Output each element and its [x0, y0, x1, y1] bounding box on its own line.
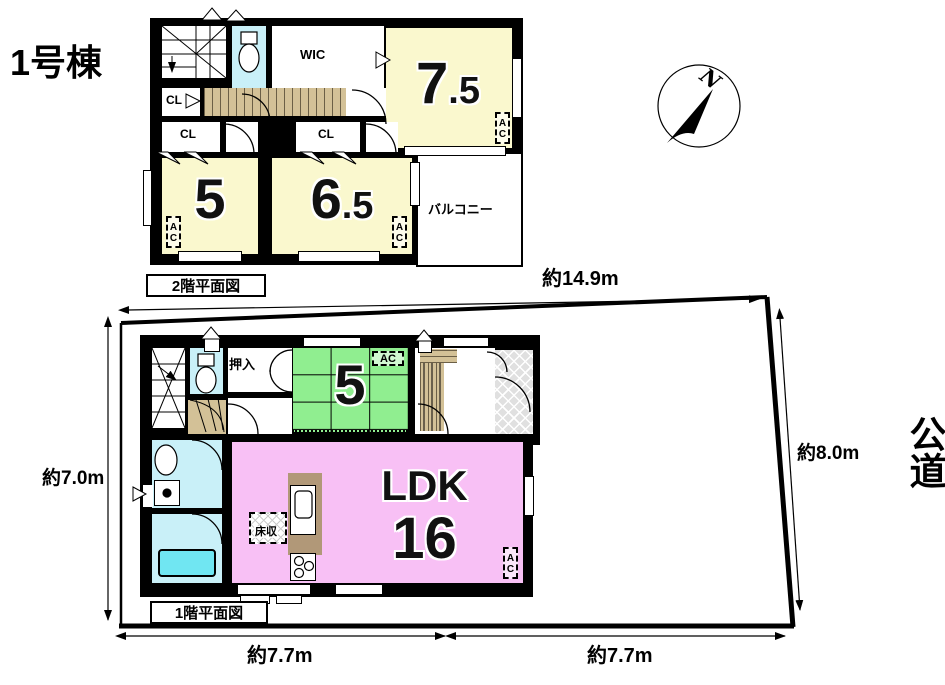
- dimension-bottom-right: 約7.7m: [585, 639, 655, 668]
- dimension-right: 約8.0m: [795, 438, 861, 465]
- room-7-5-size: 7.5: [392, 50, 504, 117]
- window: [143, 170, 152, 226]
- room-6-5-size: 6.5: [272, 166, 412, 231]
- floor2-wic-room: [272, 26, 384, 90]
- wall-jog-trim: [533, 445, 543, 597]
- dim-arrow-top: [128, 299, 759, 310]
- ac-marker-ldk: AC: [503, 547, 518, 579]
- window: [443, 337, 489, 347]
- side-door-opening: [143, 485, 153, 507]
- floor1-toilet-room: [190, 348, 223, 394]
- vent-stub: [204, 338, 220, 352]
- stove: [290, 553, 316, 581]
- window: [335, 584, 383, 595]
- floor1-stairs-run: [420, 363, 444, 431]
- floor-storage-label: 床収: [254, 526, 278, 538]
- floor1-staircase: [152, 348, 185, 428]
- closet1-label: CL: [166, 94, 182, 107]
- dimension-bottom-left: 約7.7m: [245, 639, 315, 668]
- floor2-toilet-room: [232, 26, 266, 90]
- kitchen-sink-counter: [290, 485, 316, 535]
- floor2-room5-door-gap: [226, 122, 258, 152]
- room-7-5-size-int: 7: [416, 51, 448, 116]
- genkan-entrance: [495, 350, 533, 434]
- balcony-door-window: [404, 146, 506, 156]
- window: [524, 476, 534, 516]
- window: [237, 584, 311, 595]
- room-6-5-size-int: 6: [311, 167, 342, 230]
- floor2-staircase: [162, 26, 226, 78]
- floor1-caption: 1階平面図: [150, 601, 268, 624]
- porch-step: [276, 595, 302, 604]
- balcony-label: バルコニー: [428, 203, 493, 217]
- wic-label: WIC: [300, 48, 325, 62]
- ldk-size: 16: [362, 505, 487, 572]
- tatami-room-size: 5: [292, 352, 408, 417]
- oshiire-label: 押入: [229, 358, 255, 372]
- compass-north-label: N: [695, 63, 726, 95]
- ldk-label: LDK: [352, 462, 497, 510]
- room-7-5-size-dec: .5: [448, 70, 480, 112]
- floor-plan-canvas: 1号棟 WIC 7.5 AC CL CL CL 5 AC 6.5 AC バルコニ…: [0, 0, 945, 685]
- window: [298, 251, 380, 262]
- dimension-top: 約14.9m: [540, 262, 621, 291]
- floor2-hall-door-gap: [346, 88, 386, 116]
- road-label: 公道: [897, 415, 945, 565]
- dimension-left: 約7.0m: [40, 463, 106, 490]
- window: [303, 337, 361, 347]
- lot-boundary-right: [767, 297, 793, 627]
- bathtub: [158, 549, 216, 577]
- window: [178, 251, 242, 262]
- floor1-stair-landing: [188, 400, 226, 434]
- compass-needle-icon: [667, 89, 713, 143]
- floor2-hall-stairs: [204, 88, 346, 116]
- closet3-label: CL: [318, 128, 334, 141]
- floor2-caption: 2階平面図: [146, 274, 266, 297]
- floor2-room65-door-gap: [366, 122, 398, 152]
- floor-storage: 床収: [249, 512, 287, 544]
- floor1-hall: [228, 398, 292, 434]
- floor1-closet-doors: [263, 348, 292, 392]
- vent-stub: [418, 340, 432, 353]
- room-6-5-size-dec: .5: [342, 185, 374, 227]
- washing-machine: [154, 480, 180, 506]
- lot-boundary-top: [121, 297, 767, 323]
- closet2-label: CL: [180, 128, 196, 141]
- room-5-size: 5: [162, 166, 258, 231]
- page-title: 1号棟: [10, 34, 102, 86]
- window: [512, 58, 522, 118]
